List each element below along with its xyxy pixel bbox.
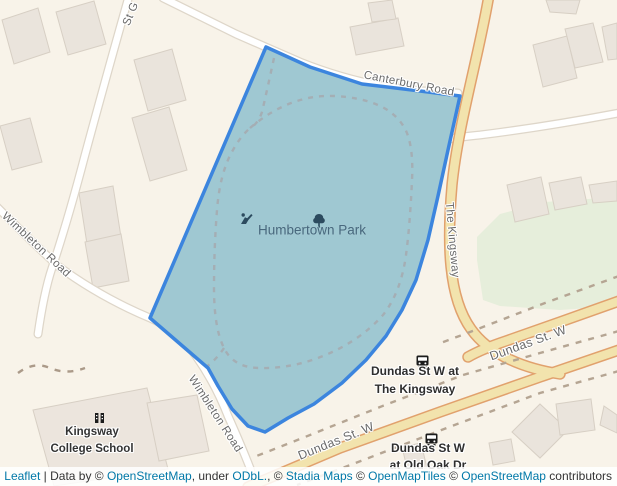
map-canvas[interactable] (0, 0, 617, 486)
attribution-bar: Leaflet | Data by © OpenStreetMap, under… (0, 467, 617, 486)
attribution-link-openstreetmap[interactable]: OpenStreetMap (107, 469, 192, 483)
attribution-link-openstreetmap[interactable]: OpenStreetMap (461, 469, 546, 483)
attribution-text: | Data by © (40, 469, 107, 483)
attribution-link-odbl[interactable]: ODbL. (232, 469, 267, 483)
attribution-text: contributors (546, 469, 612, 483)
attribution-text: , © (267, 469, 286, 483)
attribution-link-leaflet[interactable]: Leaflet (4, 469, 40, 483)
attribution-text: © (353, 469, 369, 483)
attribution-link-openmaptiles[interactable]: OpenMapTiles (368, 469, 446, 483)
attribution-text: © (446, 469, 462, 483)
attribution-text: , under (192, 469, 233, 483)
attribution-link-stadia-maps[interactable]: Stadia Maps (286, 469, 353, 483)
leaflet-map[interactable]: Canterbury Road St G The Kingsway Wimble… (0, 0, 617, 486)
